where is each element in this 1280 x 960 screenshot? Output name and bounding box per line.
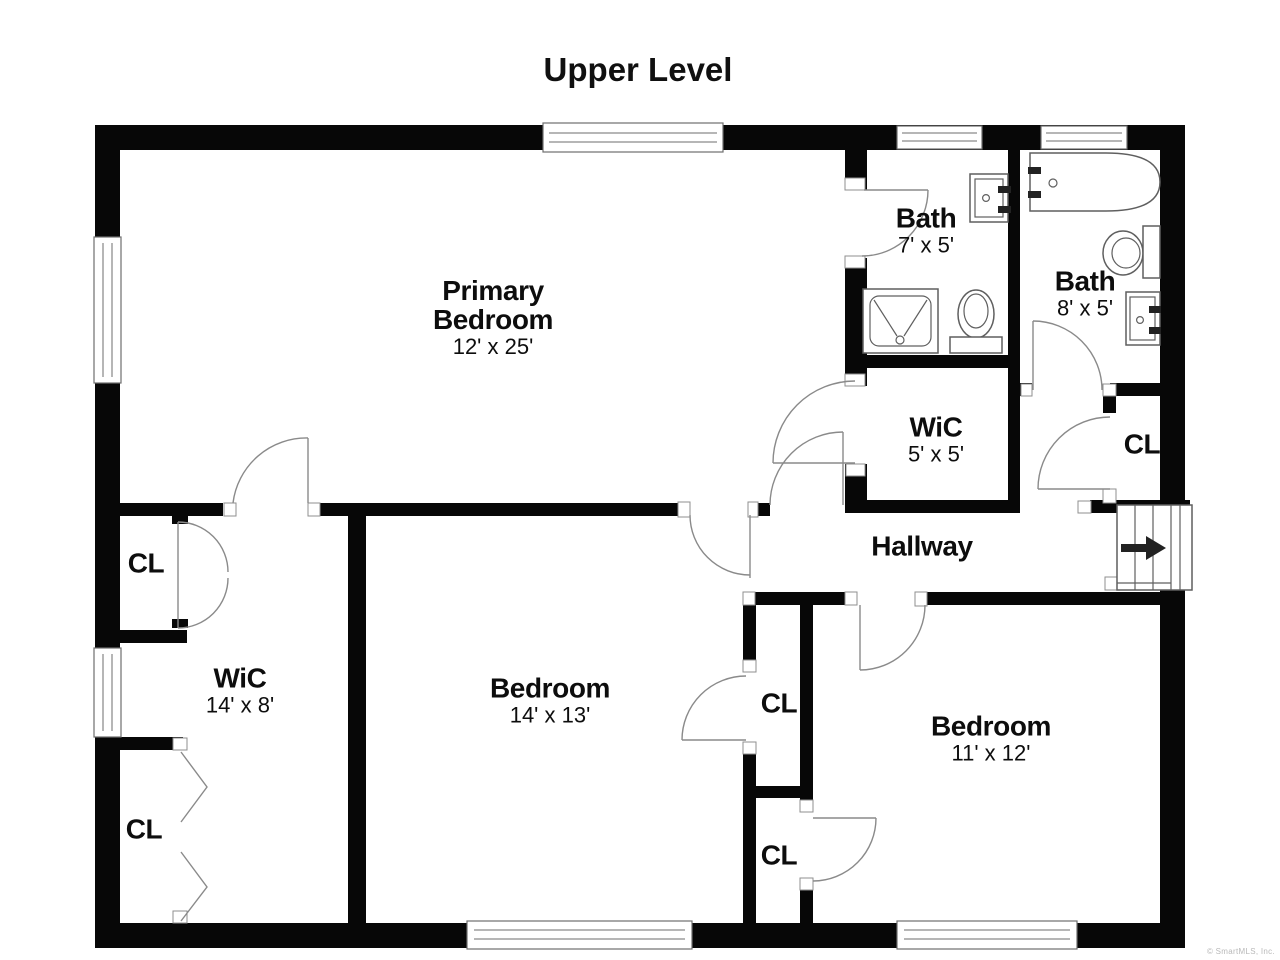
door-jamb xyxy=(743,592,755,605)
door-jamb xyxy=(748,502,758,517)
room-name: WiC xyxy=(910,413,963,442)
room-name: Hallway xyxy=(871,531,972,560)
room-name: Bath xyxy=(896,204,957,233)
door-closet-mid-top xyxy=(682,676,746,740)
room-label-closet-mid-bottom: CL xyxy=(761,840,798,869)
wall-segment xyxy=(1008,150,1020,513)
wall-segment xyxy=(1160,125,1185,505)
door-jamb xyxy=(743,660,756,672)
room-label-hallway: Hallway xyxy=(871,531,972,560)
room-label-bedroom-right: Bedroom 11' x 12' xyxy=(931,712,1051,767)
sink-vanity-icon xyxy=(1126,292,1161,345)
room-dimensions: 12' x 25' xyxy=(453,335,534,360)
room-name: CL xyxy=(1124,429,1161,458)
door-closet-left-bottom-bifold xyxy=(181,752,207,921)
room-name: CL xyxy=(126,814,163,843)
wall-segment xyxy=(348,503,366,928)
window xyxy=(1041,126,1127,149)
door-jamb xyxy=(1103,384,1116,396)
window xyxy=(897,921,1077,949)
door-jamb xyxy=(845,374,865,386)
room-name: CL xyxy=(128,548,165,577)
room-dimensions: 11' x 12' xyxy=(952,742,1031,767)
room-label-closet-left-bottom: CL xyxy=(126,814,163,843)
staircase xyxy=(1117,505,1192,590)
door-jamb xyxy=(743,742,756,754)
wall-segment xyxy=(800,890,813,927)
window xyxy=(467,921,692,949)
bathtub-icon xyxy=(1028,153,1160,211)
door-jamb xyxy=(678,502,690,517)
door-wic-left xyxy=(233,438,308,503)
room-label-bath-large: Bath 8' x 5' xyxy=(1055,267,1116,322)
door-jamb xyxy=(915,592,927,606)
room-name: CL xyxy=(761,840,798,869)
door-jamb xyxy=(1021,384,1032,396)
room-label-wic-left: WiC 14' x 8' xyxy=(206,664,274,719)
wall-segment xyxy=(118,630,187,643)
floor-plan-page: Upper Level Primary Bedroom 12' x 25' Ba… xyxy=(0,0,1280,960)
door-bedroom-center xyxy=(690,515,750,578)
wall-segment xyxy=(743,742,756,927)
door-jamb xyxy=(845,178,865,190)
door-closet-right xyxy=(1038,417,1110,489)
wall-segment xyxy=(845,355,1020,368)
page-title: Upper Level xyxy=(544,51,733,89)
wall-segment xyxy=(1110,383,1185,396)
wall-segment xyxy=(118,503,223,516)
window xyxy=(897,126,982,149)
door-jamb xyxy=(800,800,813,812)
door-bedroom-right xyxy=(860,605,925,670)
wall-segment xyxy=(758,503,770,516)
room-name: Bedroom xyxy=(931,712,1051,741)
room-label-bath-small: Bath 7' x 5' xyxy=(896,204,957,259)
window xyxy=(94,237,121,383)
door-jamb xyxy=(845,256,865,268)
room-dimensions: 14' x 13' xyxy=(510,704,591,729)
window xyxy=(543,123,723,152)
door-jamb xyxy=(845,592,857,605)
door-jamb xyxy=(846,464,865,476)
wall-segment xyxy=(800,592,813,812)
wall-segment xyxy=(927,592,1185,605)
shower-icon xyxy=(863,289,938,353)
door-closet-left-top-double xyxy=(178,522,228,628)
door-jamb xyxy=(1078,501,1091,513)
room-name: Bedroom xyxy=(490,674,610,703)
door-bath-large xyxy=(1033,321,1102,390)
sink-vanity-icon xyxy=(970,174,1011,222)
door-primary-bedroom xyxy=(770,432,843,505)
room-label-closet-right: CL xyxy=(1124,429,1161,458)
wall-segment xyxy=(845,500,1020,513)
window xyxy=(94,648,121,737)
room-dimensions: 8' x 5' xyxy=(1057,297,1113,322)
floor-plan-drawing xyxy=(0,0,1280,960)
door-jamb xyxy=(1105,577,1118,590)
exterior-walls xyxy=(95,125,1185,948)
interior-walls xyxy=(118,150,1190,928)
door-jamb xyxy=(308,503,320,516)
room-name: Primary Bedroom xyxy=(407,276,579,334)
room-name: CL xyxy=(761,688,798,717)
wall-segment xyxy=(320,503,690,516)
room-label-wic-small: WiC 5' x 5' xyxy=(908,413,964,468)
room-name: WiC xyxy=(214,664,267,693)
room-label-closet-left-top: CL xyxy=(128,548,165,577)
door-jamb xyxy=(173,738,187,750)
wall-segment xyxy=(172,619,188,628)
room-dimensions: 5' x 5' xyxy=(908,443,964,468)
door-closet-mid-bottom xyxy=(813,818,876,881)
door-jamb xyxy=(800,878,813,890)
wall-segment xyxy=(1160,590,1185,948)
wall-segment xyxy=(1103,396,1116,413)
door-jamb xyxy=(1103,489,1116,503)
door-jamb xyxy=(224,503,236,516)
room-name: Bath xyxy=(1055,267,1116,296)
toilet-icon xyxy=(950,290,1002,353)
room-dimensions: 14' x 8' xyxy=(206,694,274,719)
watermark: © SmartMLS, Inc. xyxy=(1207,947,1275,956)
wall-segment xyxy=(756,786,800,798)
room-dimensions: 7' x 5' xyxy=(898,234,954,259)
wall-segment xyxy=(755,592,845,605)
room-label-bedroom-center: Bedroom 14' x 13' xyxy=(490,674,610,729)
room-label-closet-mid-top: CL xyxy=(761,688,798,717)
room-label-primary-bedroom: Primary Bedroom 12' x 25' xyxy=(407,276,579,360)
